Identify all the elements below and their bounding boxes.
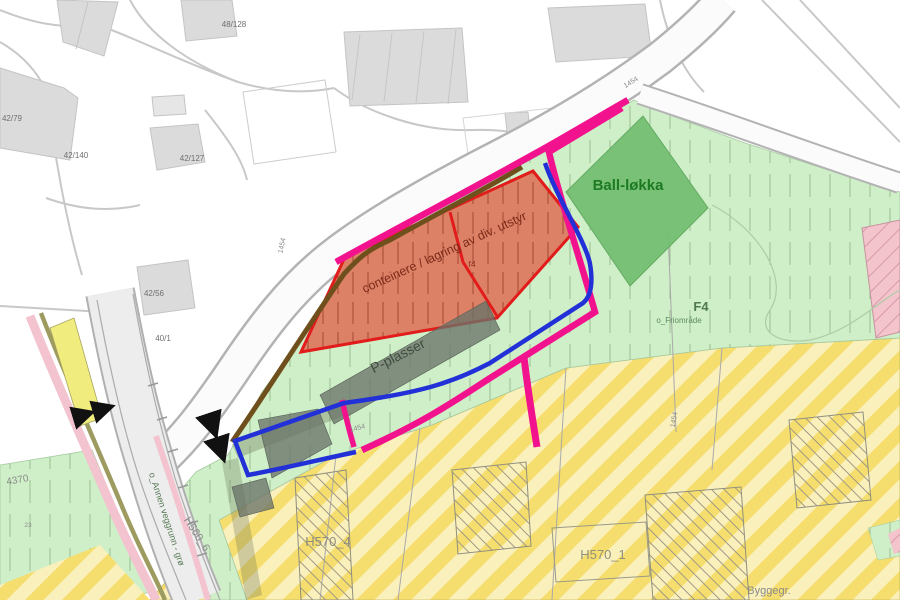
cadastral-label: 48/128: [222, 20, 247, 29]
cadastral-label: 42/56: [144, 289, 165, 298]
building: [150, 124, 205, 170]
zone-label-h570-1: H570_1: [580, 547, 626, 562]
hatched-building: [789, 412, 871, 508]
hatched-building: [645, 487, 749, 600]
building-limit-label: Byggegr.: [747, 585, 790, 597]
friomrade-code-label: F4: [693, 299, 709, 314]
friomrade-sub-label: o_Friområde: [656, 316, 702, 325]
building: [152, 95, 186, 116]
cadastral-label: 42/127: [180, 154, 205, 163]
zoning-plan-map: 48/128 42/79 42/140 42/127 42/56 40/1 14…: [0, 0, 900, 600]
cadastral-label: 40/1: [155, 334, 171, 343]
hatched-building: [452, 462, 531, 554]
zone-label-h570-4: H570_4: [305, 534, 351, 549]
cadastral-label: 42/140: [64, 151, 89, 160]
storage-zone-code: f4: [468, 259, 475, 269]
map-canvas: 48/128 42/79 42/140 42/127 42/56 40/1 14…: [0, 0, 900, 600]
ball-field-label: Ball-løkka: [593, 177, 665, 194]
cadastral-label: 42/79: [2, 114, 23, 123]
small-number-label: 23: [24, 522, 32, 529]
building: [137, 260, 195, 315]
